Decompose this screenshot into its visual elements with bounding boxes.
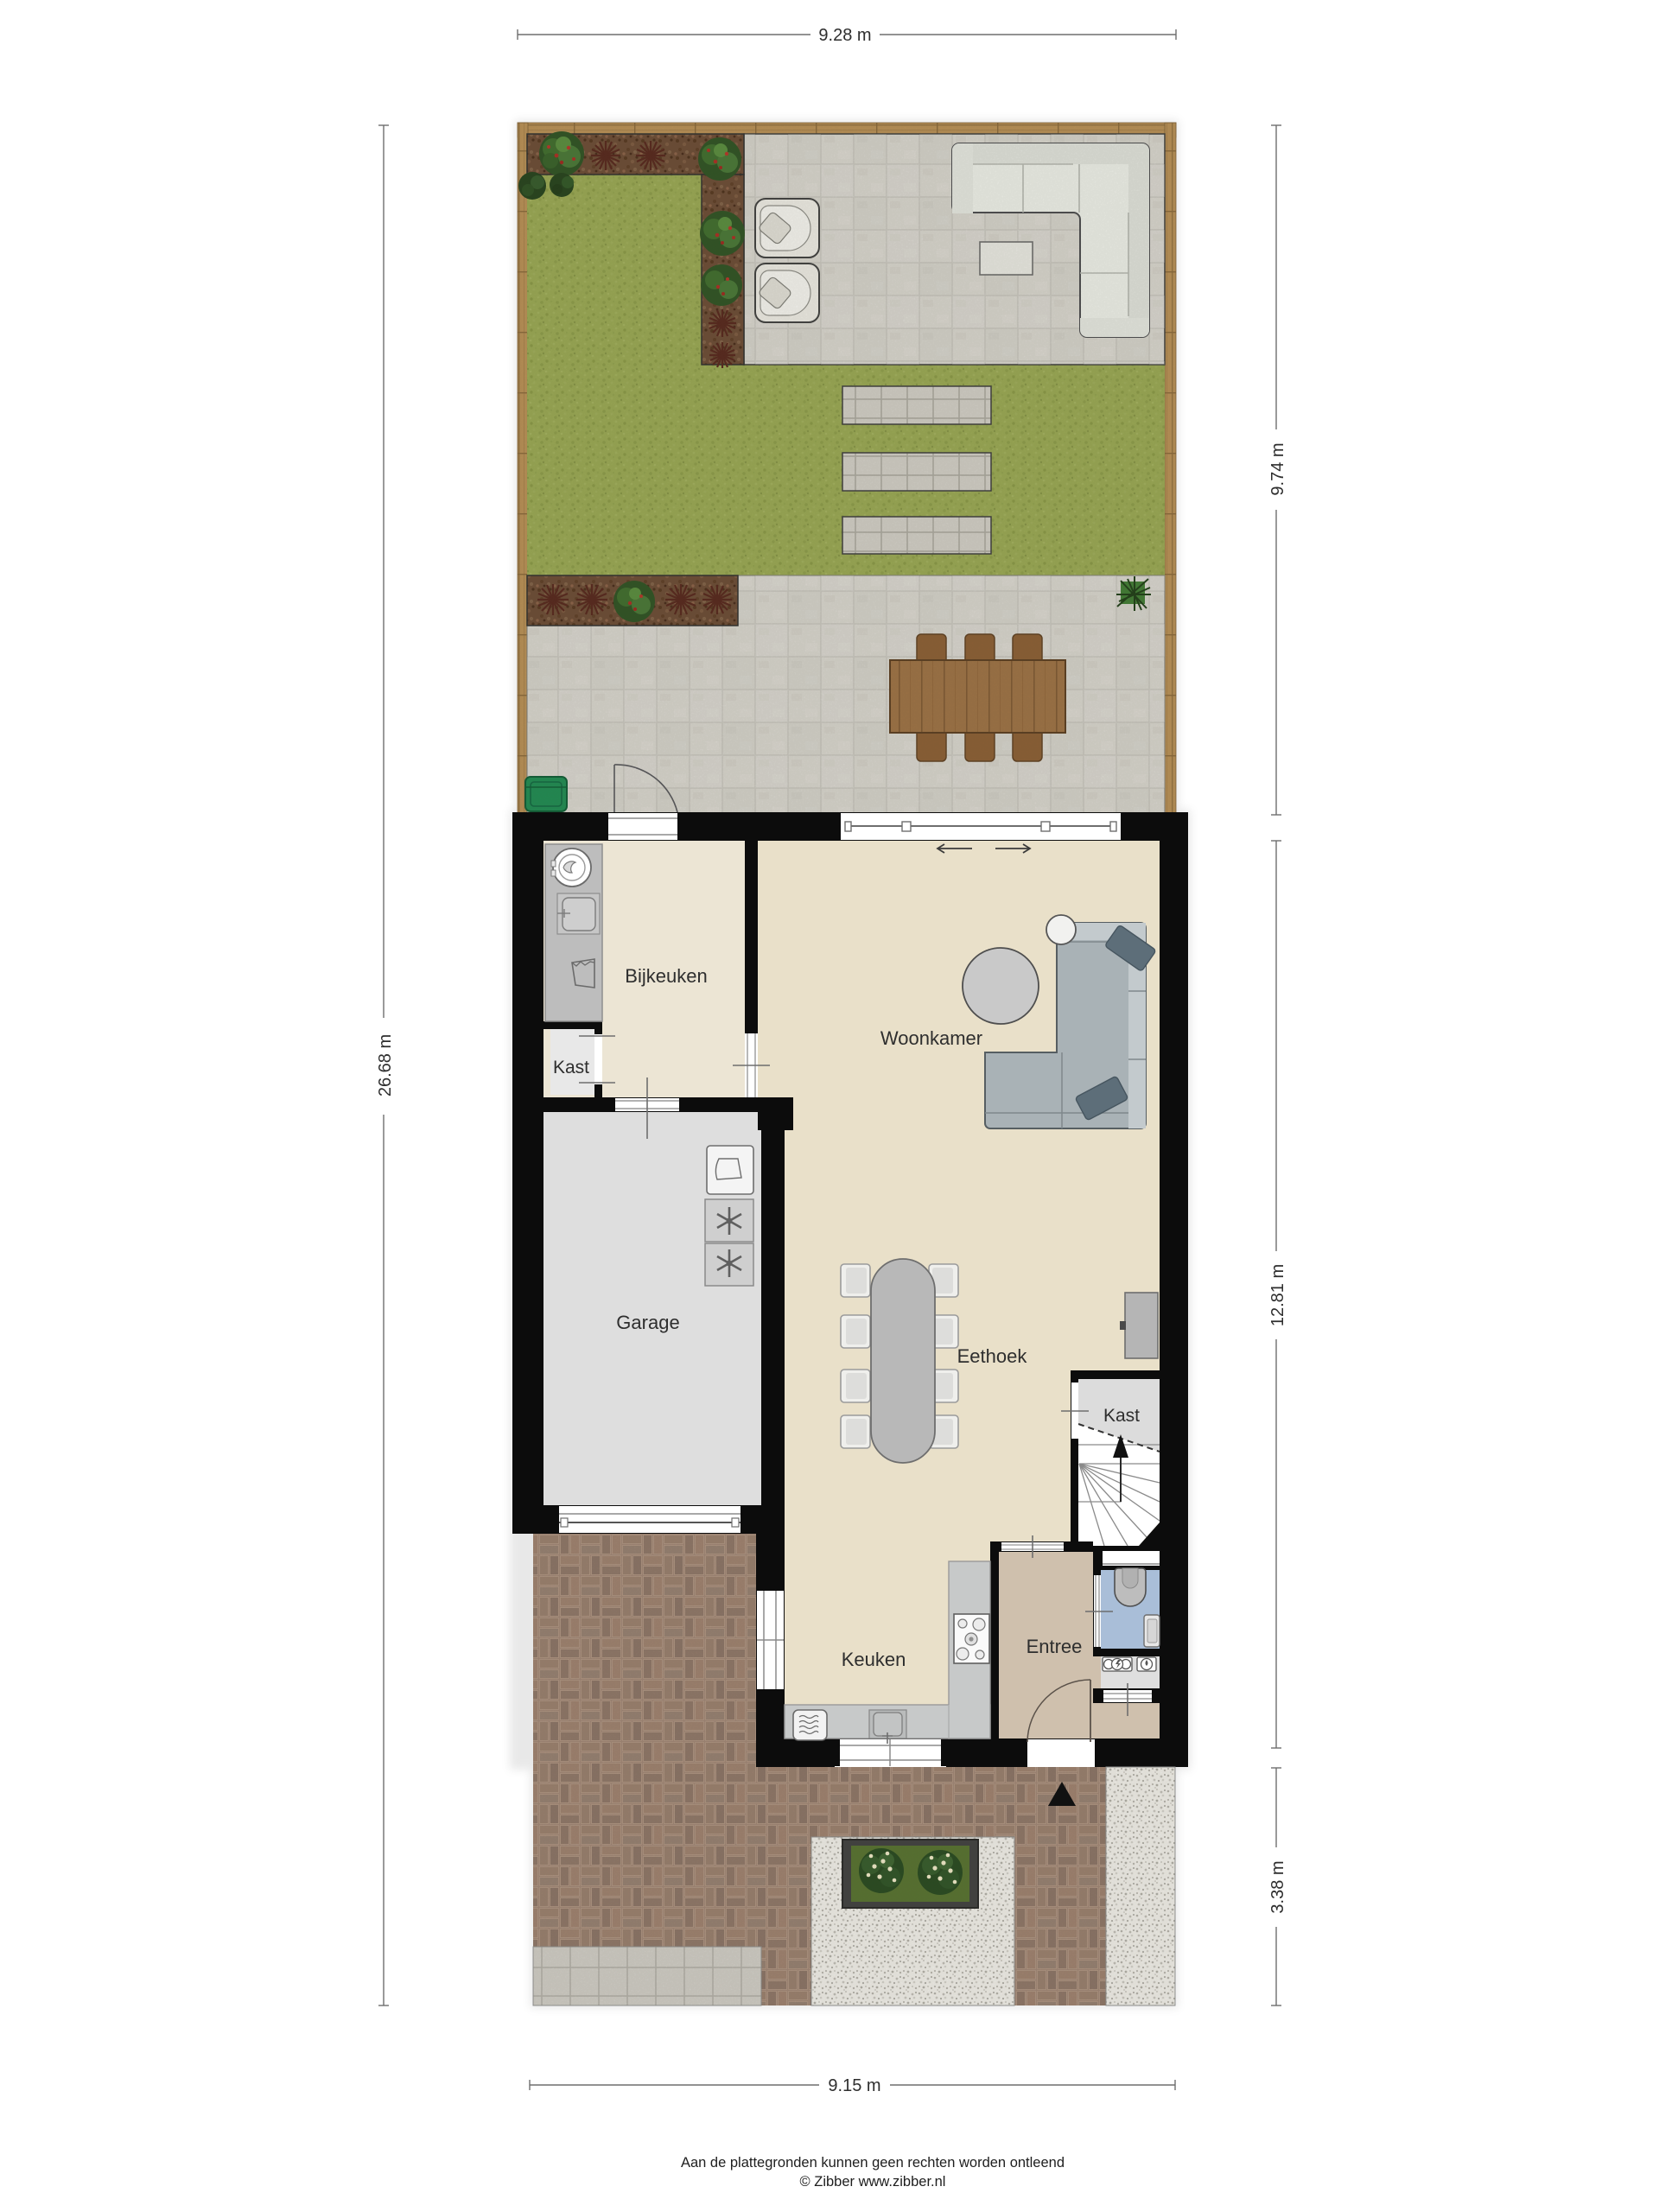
- svg-text:© Zibber www.zibber.nl: © Zibber www.zibber.nl: [800, 2174, 946, 2190]
- svg-text:Entree: Entree: [1027, 1636, 1083, 1657]
- svg-text:12.81 m: 12.81 m: [1268, 1264, 1287, 1326]
- svg-text:Kast: Kast: [1103, 1406, 1140, 1426]
- svg-text:9.28 m: 9.28 m: [818, 26, 871, 45]
- svg-text:26.68 m: 26.68 m: [376, 1034, 395, 1096]
- svg-text:9.15 m: 9.15 m: [828, 2076, 880, 2095]
- svg-text:Garage: Garage: [616, 1312, 679, 1333]
- svg-text:Keuken: Keuken: [842, 1649, 906, 1670]
- svg-text:Woonkamer: Woonkamer: [880, 1027, 982, 1049]
- svg-text:Eethoek: Eethoek: [957, 1345, 1028, 1367]
- svg-text:3.38 m: 3.38 m: [1268, 1860, 1287, 1913]
- svg-text:Kast: Kast: [553, 1058, 589, 1077]
- svg-text:Aan de plattegronden kunnen ge: Aan de plattegronden kunnen geen rechten…: [681, 2155, 1065, 2171]
- svg-text:9.74 m: 9.74 m: [1268, 442, 1287, 495]
- svg-text:Bijkeuken: Bijkeuken: [625, 965, 707, 987]
